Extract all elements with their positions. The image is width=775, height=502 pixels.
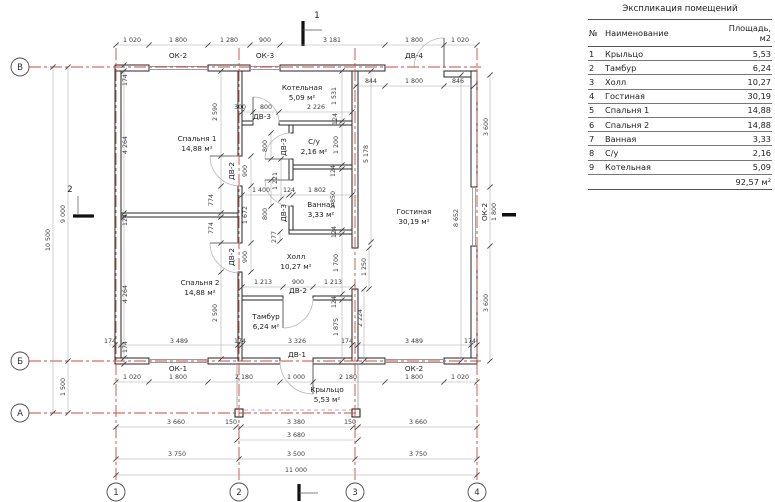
opening-tag: ДВ-2: [227, 248, 236, 266]
dim-text: 3 660: [167, 419, 185, 426]
dim-text: 1 000: [287, 374, 305, 381]
room-area: 6,24 м²: [253, 322, 280, 331]
room-name: Котельная: [282, 83, 322, 92]
dim-text: 1 500: [60, 378, 67, 396]
dim-text: 800: [262, 208, 269, 220]
dim-text: 4 264: [122, 285, 129, 303]
row-number: 3: [588, 75, 604, 89]
room-area: 2,16 м²: [301, 147, 328, 156]
grid-label: 1: [113, 488, 118, 498]
room-area: 30,19 м²: [398, 217, 429, 226]
schedule-total: 92,57 м²: [588, 174, 772, 189]
dim-text: 2 590: [212, 304, 219, 322]
dim-text: 4 264: [122, 136, 129, 154]
grid-label: 4: [474, 488, 479, 498]
dim-text: 3 600: [483, 118, 490, 136]
dim-text: 1 400: [252, 187, 270, 194]
dim-text: 1 800: [491, 203, 498, 221]
dim-text: 174: [341, 338, 353, 345]
table-row: 2Тамбур6,24: [588, 61, 772, 75]
dim-text: 124: [330, 165, 337, 177]
room-name: Ванная: [604, 132, 720, 146]
dim-text: 3 489: [405, 338, 423, 345]
room-name: Холл: [604, 75, 720, 89]
schedule-title: Экспликация помещений: [588, 1, 772, 19]
dim-text: 8 652: [453, 209, 460, 227]
dim-text: 1 221: [272, 172, 279, 190]
opening-tag: ДВ-2: [289, 286, 307, 295]
dim-text: 3 326: [288, 338, 306, 345]
dim-text: 3 660: [409, 419, 427, 426]
dim-text: 2 226: [307, 104, 325, 111]
table-row: 3Холл10,27: [588, 75, 772, 89]
room-area: 14,88: [720, 117, 772, 131]
room-name: Тамбур: [604, 61, 720, 75]
room-area: 14,88 м²: [181, 144, 212, 153]
room-area: 30,19: [720, 89, 772, 103]
room-name: Спальня 2: [181, 278, 220, 287]
dim-text: 2 224: [357, 309, 364, 327]
room-area: 6,24: [720, 61, 772, 75]
row-number: 4: [588, 89, 604, 103]
dim-text: 900: [242, 251, 249, 263]
room-name: Тамбур: [251, 312, 280, 321]
room-area: 5,09: [720, 160, 772, 174]
dim-text: 900: [242, 165, 249, 177]
room-name: Спальня 1: [604, 103, 720, 117]
schedule-table: № Наименование Площадь, м2 1Крыльцо5,532…: [588, 19, 772, 190]
table-row: 4Гостиная30,19: [588, 89, 772, 103]
dim-text: 1 200: [333, 136, 340, 154]
row-number: 1: [588, 47, 604, 61]
dim-text: 3 750: [168, 451, 186, 458]
table-row: 1Крыльцо5,53: [588, 47, 772, 61]
row-number: 7: [588, 132, 604, 146]
table-row: 7Ванная3,33: [588, 132, 772, 146]
dim-text: 3 680: [287, 432, 305, 439]
dim-text: 3 380: [287, 419, 305, 426]
dim-text: 1 700: [333, 254, 340, 272]
opening-tag: ДВ-3: [279, 204, 288, 222]
dim-text: 1 213: [324, 279, 342, 286]
dim-text: 1 800: [405, 374, 423, 381]
dim-text: 3 181: [323, 37, 341, 44]
dim-text: 277: [271, 231, 278, 243]
table-row: 6Спальня 214,88: [588, 117, 772, 131]
dim-text: 1 020: [123, 37, 141, 44]
dim-text: 1 020: [123, 374, 141, 381]
room-name: Крыльцо: [310, 385, 343, 394]
drawing-canvas: 1 0201 8001 2809003 1811 8001 0208441 80…: [0, 0, 775, 502]
dim-text: 3 500: [287, 451, 305, 458]
elevation-mark: [502, 213, 516, 217]
row-number: 8: [588, 146, 604, 160]
row-number: 5: [588, 103, 604, 117]
grid-label: В: [17, 63, 23, 73]
room-area: 10,27: [720, 75, 772, 89]
dimension-texts: 1 0201 8001 2809003 1811 8001 0208441 80…: [45, 11, 498, 474]
dim-text: 800: [262, 140, 269, 152]
opening-tag: ОК-1: [169, 364, 187, 373]
opening-tag: ОК-2: [480, 203, 489, 221]
dim-text: 1 800: [405, 78, 423, 85]
dim-text: 1 800: [169, 37, 187, 44]
opening-tag: ДВ-2: [227, 162, 236, 180]
room-name: Крыльцо: [604, 47, 720, 61]
dim-text: 1 213: [254, 279, 272, 286]
dim-text: 1 875: [333, 318, 340, 336]
row-number: 6: [588, 117, 604, 131]
dim-text: 124: [122, 214, 129, 226]
room-area: 3,33 м²: [308, 210, 335, 219]
dim-text: 846: [452, 78, 464, 85]
schedule-header-row: № Наименование Площадь, м2: [588, 20, 772, 47]
room-area: 5,09 м²: [289, 93, 316, 102]
row-number: 2: [588, 61, 604, 75]
room-area: 3,33: [720, 132, 772, 146]
opening-tag: ОК-2: [405, 364, 423, 373]
dim-text: 774: [208, 222, 215, 234]
room-name: Холл: [287, 252, 306, 261]
dim-text: 174: [122, 341, 129, 353]
grid-label: 3: [352, 488, 357, 498]
room-area: 2,16: [720, 146, 772, 160]
room-name: Гостиная: [396, 207, 431, 216]
dim-text: 844: [365, 78, 377, 85]
dim-text: 2 180: [339, 374, 357, 381]
opening-tag: ДВ-1: [288, 350, 306, 359]
dim-text: 1 802: [308, 187, 326, 194]
opening-tag: ДВ-3: [253, 112, 271, 121]
room-area: 14,88: [720, 103, 772, 117]
room-schedule: Экспликация помещений № Наименование Пло…: [588, 1, 772, 190]
section-marks: [73, 21, 322, 501]
dim-text: 774: [208, 194, 215, 206]
room-name: Котельная: [604, 160, 720, 174]
dim-text: 900: [259, 37, 271, 44]
dim-text: 174: [234, 338, 246, 345]
room-name: Ванная: [307, 200, 334, 209]
schedule-total-row: 92,57 м²: [588, 174, 772, 189]
room-area: 5,53: [720, 47, 772, 61]
dim-text: 1 020: [451, 374, 469, 381]
dim-text: 5 178: [363, 145, 370, 163]
row-number: 9: [588, 160, 604, 174]
grid-label: 2: [236, 488, 241, 498]
dim-text: 2 180: [235, 374, 253, 381]
room-name: С/у: [604, 146, 720, 160]
dim-text: 1 672: [242, 206, 249, 224]
col-area: Площадь, м2: [720, 20, 772, 47]
col-number: №: [588, 20, 604, 47]
dim-text: 10 500: [45, 229, 52, 251]
dim-text: 9 000: [60, 205, 67, 223]
dim-text: 150: [225, 419, 237, 426]
dim-text: 174: [104, 338, 116, 345]
dim-text: 124: [331, 226, 338, 238]
opening-tag: ДВ-4: [405, 51, 423, 60]
dim-text: 1 250: [361, 258, 368, 276]
dim-text: 150: [344, 419, 356, 426]
dim-text: 3 600: [483, 294, 490, 312]
room-name: Спальня 2: [604, 117, 720, 131]
dim-text: 1 020: [451, 37, 469, 44]
col-name: Наименование: [604, 20, 720, 47]
dim-text: 1 800: [169, 374, 187, 381]
dim-text: 1 280: [220, 37, 238, 44]
room-area: 5,53 м²: [314, 395, 341, 404]
section-label: 1: [314, 11, 319, 21]
dim-text: 3 750: [409, 451, 427, 458]
table-row: 8С/у2,16: [588, 146, 772, 160]
dim-text: 300: [234, 104, 246, 111]
table-row: 5Спальня 114,88: [588, 103, 772, 117]
opening-tag: ОК-2: [169, 51, 187, 60]
dim-text: 2 590: [212, 103, 219, 121]
grid-label: Б: [17, 357, 23, 367]
room-name: Спальня 1: [178, 134, 217, 143]
dim-text: 124: [331, 296, 338, 308]
dim-text: 900: [292, 279, 304, 286]
dim-text: 1 531: [331, 87, 338, 105]
dim-text: 174: [464, 338, 476, 345]
section-label: 2: [67, 185, 72, 195]
dim-text: 124: [332, 113, 339, 125]
opening-tag: ОК-3: [256, 51, 275, 60]
dim-text: 11 000: [285, 467, 307, 474]
dim-text: 3 489: [170, 338, 188, 345]
room-area: 10,27 м²: [280, 262, 311, 271]
dim-text: 174: [122, 74, 129, 86]
table-row: 9Котельная5,09: [588, 160, 772, 174]
opening-tag: ДВ-3: [279, 138, 288, 156]
dim-text: 124: [283, 187, 295, 194]
room-area: 14,88 м²: [184, 288, 215, 297]
grid-label: А: [17, 409, 23, 419]
dim-text: 800: [260, 104, 272, 111]
dim-text: 1 800: [405, 37, 423, 44]
room-name: Гостиная: [604, 89, 720, 103]
room-name: С/у: [308, 137, 320, 146]
